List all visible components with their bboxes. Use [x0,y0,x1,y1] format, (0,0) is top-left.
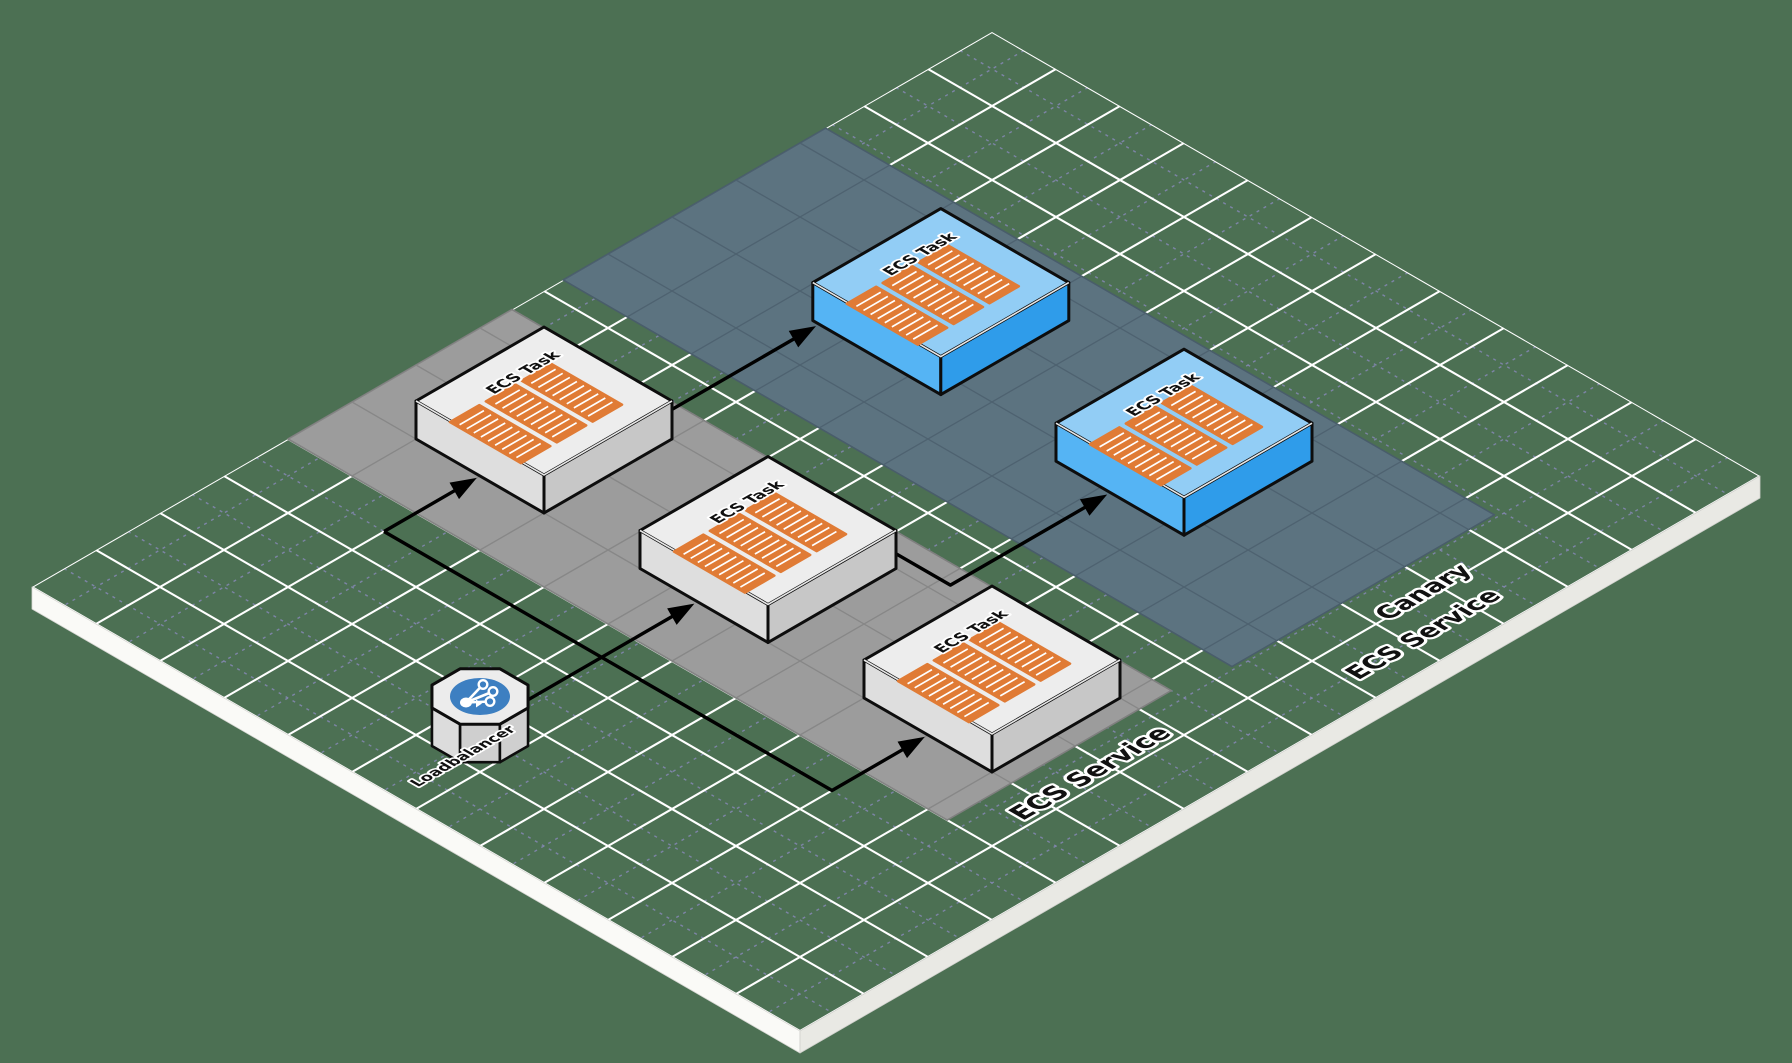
isometric-scene: ECS ServiceCanaryECS ServiceECS TaskECS … [0,0,1792,1063]
load-balancer-icon [450,678,510,715]
diagram-canvas: ECS ServiceCanaryECS ServiceECS TaskECS … [0,0,1792,1063]
